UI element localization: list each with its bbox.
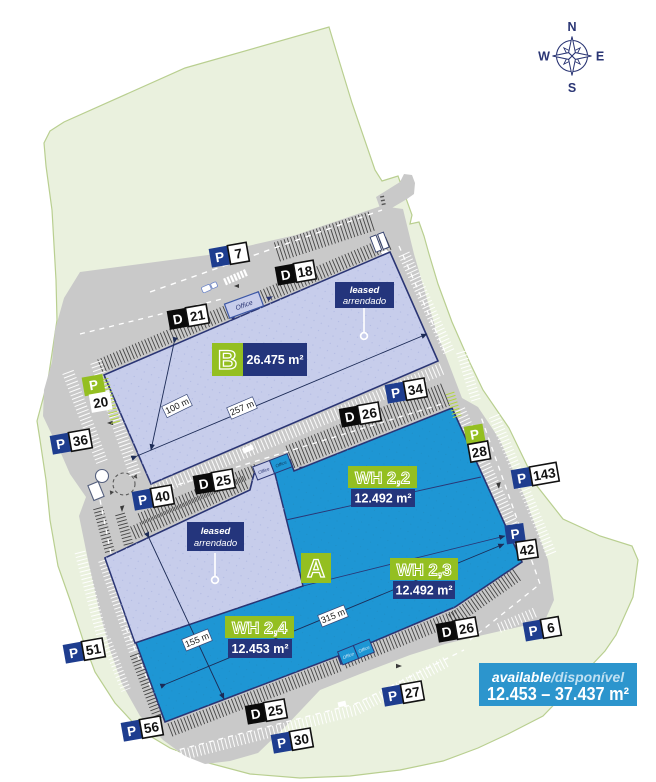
svg-text:12.453 – 37.437 m²: 12.453 – 37.437 m²: [487, 684, 629, 704]
svg-text:25: 25: [215, 472, 233, 489]
svg-text:arrendado: arrendado: [194, 538, 237, 549]
svg-text:WH 2,3: WH 2,3: [396, 562, 451, 580]
svg-text:27: 27: [404, 684, 421, 701]
svg-text:S: S: [568, 81, 576, 95]
svg-text:26.475 m²: 26.475 m²: [247, 353, 304, 367]
svg-text:W: W: [538, 50, 550, 64]
svg-text:20: 20: [92, 394, 109, 411]
svg-text:51: 51: [85, 641, 103, 658]
svg-text:30: 30: [293, 731, 310, 748]
svg-text:26: 26: [361, 405, 379, 422]
svg-text:A: A: [307, 555, 325, 583]
svg-text:available/disponível: available/disponível: [492, 669, 625, 685]
svg-text:arrendado: arrendado: [343, 296, 386, 307]
svg-text:26: 26: [458, 620, 476, 637]
svg-text:21: 21: [189, 307, 207, 324]
svg-text:WH 2,4: WH 2,4: [232, 620, 288, 638]
svg-text:N: N: [567, 20, 576, 34]
svg-text:25: 25: [267, 702, 285, 719]
svg-text:E: E: [596, 50, 604, 64]
svg-text:56: 56: [143, 719, 161, 736]
svg-text:12.492 m²: 12.492 m²: [396, 584, 453, 598]
svg-text:18: 18: [296, 263, 314, 280]
svg-text:42: 42: [519, 542, 536, 559]
svg-text:leased: leased: [350, 285, 380, 296]
svg-text:12.492 m²: 12.492 m²: [355, 492, 412, 506]
svg-text:34: 34: [407, 381, 425, 398]
svg-text:40: 40: [154, 488, 171, 505]
svg-text:B: B: [218, 345, 238, 375]
svg-text:12.453 m²: 12.453 m²: [232, 642, 289, 656]
svg-text:28: 28: [471, 443, 489, 460]
svg-text:WH 2,2: WH 2,2: [355, 470, 410, 488]
svg-text:leased: leased: [201, 526, 231, 537]
svg-text:36: 36: [72, 432, 90, 449]
